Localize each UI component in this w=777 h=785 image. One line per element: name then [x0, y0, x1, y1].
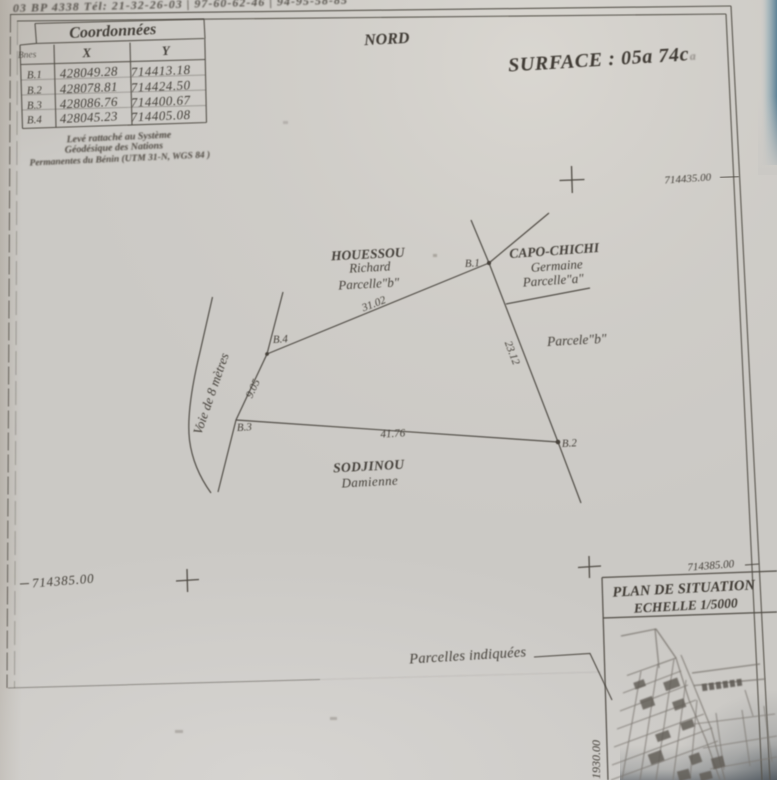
svg-text:1930.00: 1930.00 [589, 740, 603, 779]
svg-text:Damienne: Damienne [340, 473, 398, 491]
svg-text:41.76: 41.76 [380, 427, 406, 440]
svg-text:Richard: Richard [348, 258, 392, 275]
svg-text:B.1: B.1 [465, 257, 481, 270]
svg-text:B.2: B.2 [27, 84, 43, 97]
svg-text:B.4: B.4 [273, 333, 289, 346]
svg-text:B.2: B.2 [562, 437, 578, 450]
svg-text:NORD: NORD [363, 30, 411, 49]
svg-text:B.4: B.4 [27, 114, 43, 127]
svg-text:Parcele"b": Parcele"b" [546, 331, 608, 349]
svg-text:B.3: B.3 [27, 99, 43, 112]
svg-text:a: a [689, 49, 696, 63]
svg-text:X: X [81, 45, 92, 60]
svg-text:B.1: B.1 [27, 69, 43, 82]
svg-text:428045.23: 428045.23 [59, 108, 118, 126]
svg-text:Bnes: Bnes [18, 50, 37, 61]
svg-text:714405.08: 714405.08 [130, 107, 190, 125]
svg-text:B.3: B.3 [237, 421, 253, 434]
